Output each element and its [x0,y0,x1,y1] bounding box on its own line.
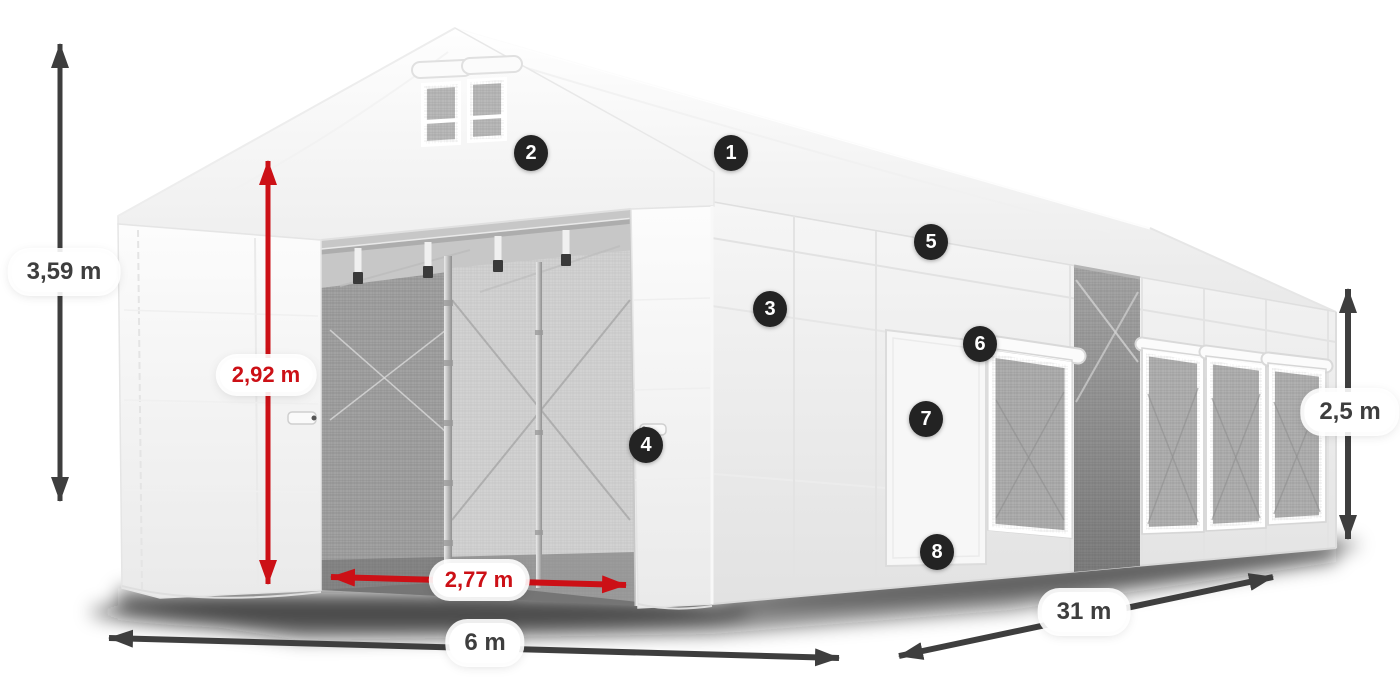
left-door-handle [288,412,317,424]
side-door-opening [1074,266,1140,572]
callout-8[interactable]: 8 [920,534,954,570]
callout-7[interactable]: 7 [909,401,943,437]
dimension-label-width: 6 m [449,623,520,663]
front-left-panel [118,224,321,598]
side-entrance-flap [886,330,986,566]
side-window-3 [1206,352,1266,531]
tent-dimension-diagram: 3,59 m 2,92 m 2,77 m 6 m 31 m 2,5 m 1 2 … [0,0,1400,700]
dimension-label-length: 31 m [1042,592,1127,632]
front-right-door-flap [631,206,712,609]
side-window-4 [1268,359,1326,525]
dimension-label-inner-height: 2,92 m [220,358,313,392]
side-window-2 [1142,344,1204,534]
callout-1[interactable]: 1 [714,135,748,171]
dimension-label-side-height: 2,5 m [1304,392,1395,432]
dimension-label-total-height: 3,59 m [12,252,117,292]
front-opening-interior [321,208,638,606]
callout-3[interactable]: 3 [753,291,787,327]
callout-4[interactable]: 4 [629,427,663,463]
front-gable [118,28,714,240]
tent-illustration [0,0,1400,700]
callout-5[interactable]: 5 [914,224,948,260]
side-window-1 [984,342,1078,538]
callout-6[interactable]: 6 [963,326,997,362]
dimension-label-door-width: 2,77 m [433,563,526,597]
callout-2[interactable]: 2 [514,135,548,171]
